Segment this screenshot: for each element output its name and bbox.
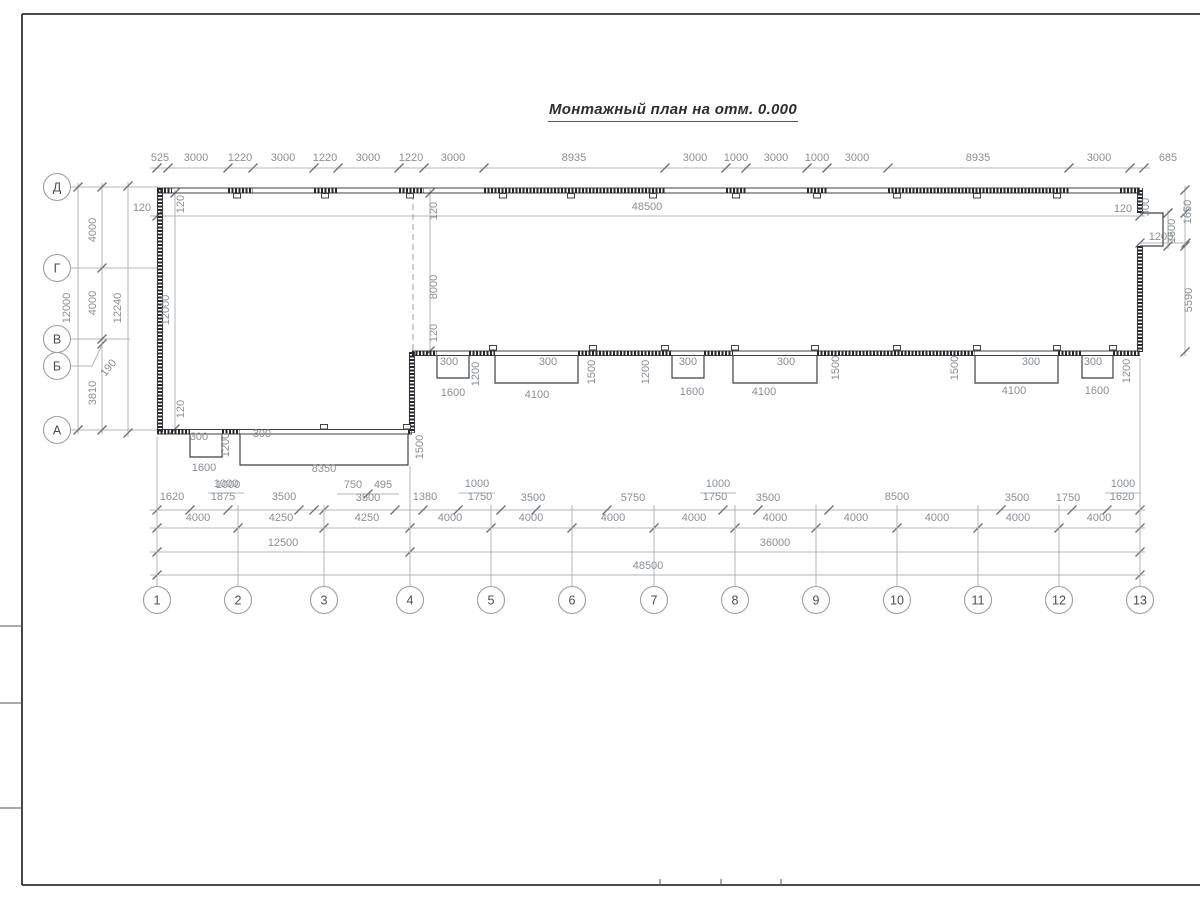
dim-label: 1650 xyxy=(1182,200,1194,224)
dim-label: 4000 xyxy=(519,512,543,524)
wall-tab xyxy=(322,194,329,199)
dim-label: 4000 xyxy=(87,291,99,315)
dim-label: 1000 xyxy=(1111,478,1135,490)
wall-tab xyxy=(894,194,901,199)
dim-label: 1220 xyxy=(228,152,252,164)
dim-label: 4000 xyxy=(1006,512,1030,524)
dim-label: 525 xyxy=(151,152,169,164)
dim-label: 1600 xyxy=(1085,385,1109,397)
dim-label: 4000 xyxy=(438,512,462,524)
axis-label: Б xyxy=(53,360,61,374)
wall-tab xyxy=(321,425,328,430)
dim-label: 1000 xyxy=(805,152,829,164)
dim-label: 1000 xyxy=(214,478,238,490)
dim-label: 3500 xyxy=(1005,492,1029,504)
dim-label: 3000 xyxy=(845,152,869,164)
dim-label: 4000 xyxy=(844,512,868,524)
dim-label: 4000 xyxy=(87,218,99,242)
wall-tab xyxy=(590,346,597,351)
dim-label: 12000 xyxy=(160,295,172,326)
dim-label: 300 xyxy=(1022,356,1040,368)
dim-label: 4100 xyxy=(525,389,549,401)
frame-border xyxy=(22,14,1200,885)
dim-label: 1220 xyxy=(313,152,337,164)
wall-tab xyxy=(1054,346,1061,351)
axis-label: 7 xyxy=(651,594,658,608)
dim-label: 120 xyxy=(133,202,151,214)
dim-label: 1500 xyxy=(830,356,842,380)
dim-label: 3000 xyxy=(184,152,208,164)
axis-label: Д xyxy=(53,181,62,195)
wall-tab xyxy=(733,194,740,199)
wall-tab xyxy=(650,194,657,199)
axis-label: 5 xyxy=(488,594,495,608)
wall-tab xyxy=(974,346,981,351)
dim-label: 1000 xyxy=(706,478,730,490)
axis-bubbles: ДГВБА12345678910111213 xyxy=(44,174,1154,614)
dim-label: 3000 xyxy=(356,152,380,164)
dim-label: 1200 xyxy=(220,433,232,457)
wall-tab xyxy=(234,194,241,199)
dim-label: 4250 xyxy=(269,512,293,524)
dim-label: 12500 xyxy=(268,537,299,549)
drawing-frame xyxy=(0,14,1200,885)
dim-label: 1750 xyxy=(468,491,492,503)
dim-label: 36000 xyxy=(760,537,791,549)
dim-label: 1200 xyxy=(1121,359,1133,383)
wall-recess xyxy=(975,355,1058,383)
axis-label: 9 xyxy=(813,594,820,608)
dim-label: 3500 xyxy=(521,492,545,504)
dim-label: 4000 xyxy=(1087,512,1111,524)
dim-label: 48500 xyxy=(633,560,664,572)
dim-label: 8000 xyxy=(428,275,440,299)
axis-label: Г xyxy=(54,262,61,276)
dim-label: 8935 xyxy=(562,152,586,164)
dim-label: 1380 xyxy=(413,491,437,503)
dim-label: 48500 xyxy=(632,201,663,213)
dim-label: 3810 xyxy=(87,381,99,405)
dim-label: 1220 xyxy=(399,152,423,164)
dim-label: 300 xyxy=(440,356,458,368)
wall-tab xyxy=(814,194,821,199)
dim-label: 300 xyxy=(777,356,795,368)
dim-label: 120 xyxy=(428,202,440,220)
dim-label: 1620 xyxy=(1110,491,1134,503)
dim-label: 3000 xyxy=(764,152,788,164)
dim-label: 4250 xyxy=(355,512,379,524)
dim-label: 300 xyxy=(1084,356,1102,368)
dim-label: 3000 xyxy=(271,152,295,164)
wall-recess xyxy=(495,355,578,383)
wall-tab xyxy=(1054,194,1061,199)
dim-label: 4000 xyxy=(763,512,787,524)
wall-tab xyxy=(404,425,411,430)
dim-label: 300 xyxy=(190,431,208,443)
dim-label: 4000 xyxy=(682,512,706,524)
dim-label: 120 xyxy=(175,400,187,418)
plan-canvas: 5253000122030001220300012203000893530001… xyxy=(0,0,1200,900)
dim-label: 4000 xyxy=(186,512,210,524)
dim-label: 3000 xyxy=(1087,152,1111,164)
wall-tab xyxy=(1110,346,1117,351)
dim-label: 1750 xyxy=(703,491,727,503)
axis-label: В xyxy=(53,333,61,347)
dim-label: 685 xyxy=(1159,152,1177,164)
dim-label: 1620 xyxy=(160,491,184,503)
dim-label: 1600 xyxy=(441,387,465,399)
drawing-sheet: 5253000122030001220300012203000893530001… xyxy=(0,0,1200,900)
axis-label: 4 xyxy=(407,594,414,608)
wall-tab xyxy=(407,194,414,199)
wall-tab xyxy=(662,346,669,351)
dim-label: 1200 xyxy=(470,362,482,386)
dim-label: 3500 xyxy=(756,492,780,504)
axis-label: 12 xyxy=(1052,594,1066,608)
wall-tab xyxy=(732,346,739,351)
dim-label: 300 xyxy=(679,356,697,368)
dim-label: 300 xyxy=(539,356,557,368)
dim-label: 5590 xyxy=(1183,288,1195,312)
plan-title: Монтажный план на отм. 0.000 xyxy=(548,101,798,122)
axis-label: 13 xyxy=(1133,594,1147,608)
dim-label: 190 xyxy=(98,357,119,379)
wall-tab xyxy=(490,346,497,351)
axis-label: 2 xyxy=(235,594,242,608)
wall-tab xyxy=(568,194,575,199)
axis-label: А xyxy=(53,424,62,438)
axis-label: 6 xyxy=(569,594,576,608)
axis-label: 11 xyxy=(972,594,985,608)
dim-label: 8350 xyxy=(312,463,336,475)
dim-label: 120 xyxy=(428,324,440,342)
wall-tab xyxy=(974,194,981,199)
wall-tab xyxy=(812,346,819,351)
dim-label: 1500 xyxy=(586,360,598,384)
dim-label: 1200 xyxy=(1149,231,1173,243)
dim-label: 4100 xyxy=(1002,385,1026,397)
wall-tab xyxy=(500,194,507,199)
dim-label: 4000 xyxy=(601,512,625,524)
dim-label: 3000 xyxy=(441,152,465,164)
axis-label: 10 xyxy=(890,594,904,608)
dim-label: 120 xyxy=(1114,203,1132,215)
axis-label: 3 xyxy=(321,594,328,608)
dimension-labels: 5253000122030001220300012203000893530001… xyxy=(61,152,1195,572)
dim-label: 300 xyxy=(253,428,271,440)
dim-label: 750 xyxy=(344,479,362,491)
dim-label: 120 xyxy=(175,195,187,213)
dim-label: 300 xyxy=(1140,198,1152,216)
dim-label: 4000 xyxy=(925,512,949,524)
dim-label: 1500 xyxy=(949,356,961,380)
dim-label: 4100 xyxy=(752,386,776,398)
dim-label: 1200 xyxy=(640,360,652,384)
dim-label: 1600 xyxy=(192,462,216,474)
dim-label: 3500 xyxy=(272,491,296,503)
dim-label: 1750 xyxy=(1056,492,1080,504)
wall-outlines xyxy=(157,188,1163,465)
dim-label: 12000 xyxy=(61,293,73,324)
wall-tab xyxy=(894,346,901,351)
dim-label: 3000 xyxy=(683,152,707,164)
dim-label: 8935 xyxy=(966,152,990,164)
axis-label: 8 xyxy=(732,594,739,608)
axis-label: 1 xyxy=(154,594,161,608)
dimension-lines xyxy=(70,164,1191,589)
dim-label: 3500 xyxy=(356,492,380,504)
dim-label: 1000 xyxy=(465,478,489,490)
dim-label: 8500 xyxy=(885,491,909,503)
wall-recess xyxy=(733,355,817,383)
dim-label: 1600 xyxy=(680,386,704,398)
dim-label: 495 xyxy=(374,479,392,491)
dim-label: 5750 xyxy=(621,492,645,504)
dim-label: 1875 xyxy=(211,491,235,503)
dim-label: 12240 xyxy=(112,293,124,324)
dim-label: 1500 xyxy=(414,435,426,459)
dim-label: 1000 xyxy=(724,152,748,164)
